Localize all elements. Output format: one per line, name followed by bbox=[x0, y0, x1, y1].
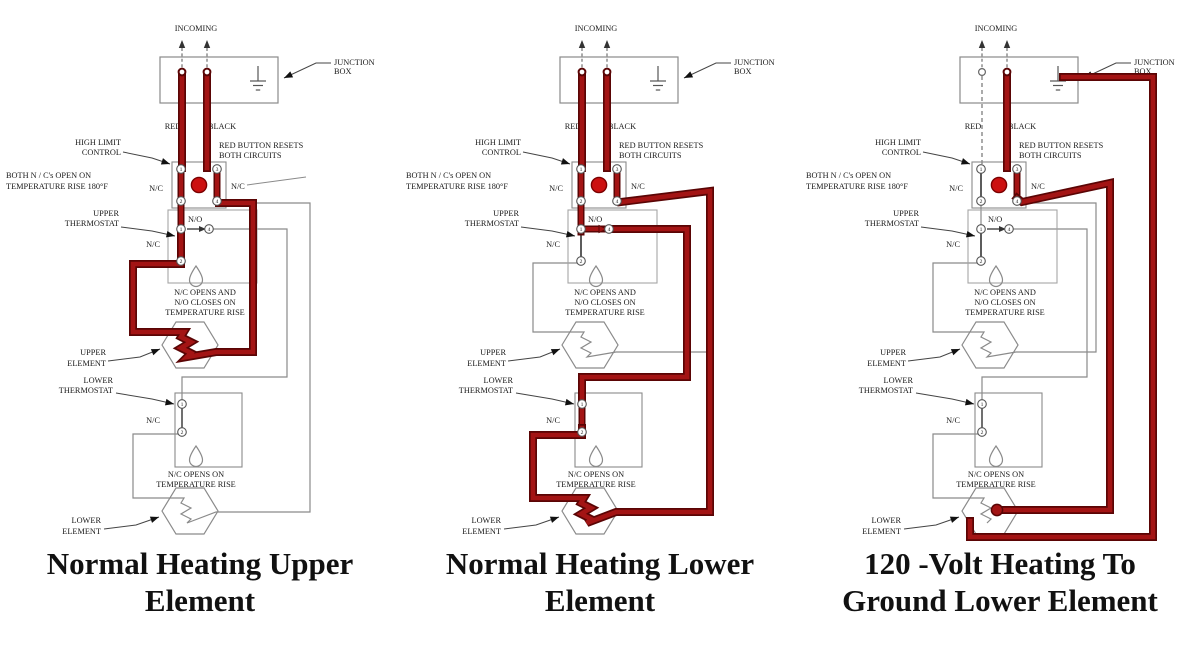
upper-thermostat-note: N/O CLOSES ON bbox=[574, 298, 635, 307]
upper-thermostat-note: N/C OPENS AND bbox=[574, 288, 636, 297]
lower-thermostat-note: N/C OPENS ON bbox=[968, 470, 1024, 479]
leader-arrowhead bbox=[151, 349, 160, 355]
upper-element-circuit bbox=[933, 203, 1096, 357]
incoming-arrow-icon bbox=[1004, 40, 1010, 48]
lower-thermostat-leader bbox=[916, 393, 974, 404]
incoming-arrow-icon bbox=[979, 40, 985, 48]
terminal-number: 1 bbox=[981, 402, 984, 408]
terminal-number: 2 bbox=[580, 259, 583, 265]
incoming-arrow-icon bbox=[604, 40, 610, 48]
junction-box bbox=[560, 57, 678, 103]
no-label: N/O bbox=[988, 215, 1002, 224]
black-wire-label: BLACK bbox=[1008, 122, 1036, 131]
lower-thermostat-leader bbox=[116, 393, 174, 404]
terminal-number: 1 bbox=[180, 227, 183, 233]
lower-bulb-icon bbox=[190, 446, 203, 467]
terminal-number: 1 bbox=[181, 402, 184, 408]
both-nc-label: TEMPERATURE RISE 180°F bbox=[806, 182, 908, 191]
red-wire-loop bbox=[979, 69, 986, 76]
nc-label-upper: N/C bbox=[946, 240, 960, 249]
leader-arrowhead bbox=[950, 517, 959, 523]
leader-arrowhead bbox=[566, 231, 575, 237]
incoming-arrow-icon bbox=[579, 40, 585, 48]
diagram-120v-ground: JUNCTIONBOXINCOMINGREDBLACK132414212HIGH… bbox=[800, 0, 1200, 654]
upper-thermostat-note: TEMPERATURE RISE bbox=[165, 308, 245, 317]
leader-arrowhead bbox=[966, 231, 975, 237]
nc-label-hlc-right: N/C bbox=[1031, 182, 1045, 191]
leader-arrowhead bbox=[684, 71, 693, 78]
lower-element-label: ELEMENT bbox=[862, 527, 901, 536]
terminal-number: 2 bbox=[181, 430, 184, 436]
terminal-number: 1 bbox=[180, 167, 183, 173]
caption-line: Element bbox=[400, 583, 800, 620]
terminal-number: 2 bbox=[180, 199, 183, 205]
nc-right-leader bbox=[247, 177, 306, 185]
lower-thermostat-label: THERMOSTAT bbox=[859, 386, 913, 395]
leader-arrowhead bbox=[165, 399, 174, 405]
both-nc-label: BOTH N / C's OPEN ON bbox=[6, 171, 91, 180]
upper-element bbox=[562, 322, 618, 368]
terminal-number: 2 bbox=[980, 199, 983, 205]
caption-line: Ground Lower Element bbox=[800, 583, 1200, 620]
terminal-number: 1 bbox=[581, 402, 584, 408]
upper-thermostat-label: THERMOSTAT bbox=[865, 219, 919, 228]
red-reset-button bbox=[591, 177, 606, 192]
red-reset-button bbox=[991, 177, 1006, 192]
red-button-label: RED BUTTON RESETS bbox=[219, 141, 304, 150]
red-button-label: BOTH CIRCUITS bbox=[619, 151, 682, 160]
terminal-number: 1 bbox=[580, 227, 583, 233]
both-nc-label: TEMPERATURE RISE 180°F bbox=[6, 182, 108, 191]
leader-arrowhead bbox=[961, 158, 970, 164]
terminal-number: 4 bbox=[1008, 227, 1011, 233]
lower-bulb-icon bbox=[590, 446, 603, 467]
junction-box-label: BOX bbox=[734, 67, 752, 76]
upper-thermostat-note: N/C OPENS AND bbox=[174, 288, 236, 297]
lower-thermostat-label: THERMOSTAT bbox=[59, 386, 113, 395]
leader-arrowhead bbox=[161, 158, 170, 164]
leader-arrowhead bbox=[951, 349, 960, 355]
upper-thermostat-note: N/O CLOSES ON bbox=[174, 298, 235, 307]
nc-label-hlc-left: N/C bbox=[149, 184, 163, 193]
terminal-number: 4 bbox=[1016, 199, 1019, 205]
lower-element-label: ELEMENT bbox=[62, 527, 101, 536]
nc-label-lower: N/C bbox=[546, 416, 560, 425]
upper-element-label: UPPER bbox=[880, 348, 906, 357]
terminal-number: 3 bbox=[1016, 167, 1019, 173]
lower-element bbox=[162, 488, 218, 534]
upper-element-label: ELEMENT bbox=[467, 359, 506, 368]
terminal-number: 2 bbox=[980, 259, 983, 265]
red-button-label: BOTH CIRCUITS bbox=[219, 151, 282, 160]
lower-thermostat-label: LOWER bbox=[84, 376, 114, 385]
terminal-number: 2 bbox=[981, 430, 984, 436]
terminal-number: 4 bbox=[216, 199, 219, 205]
upper-element-label: ELEMENT bbox=[867, 359, 906, 368]
lower-thermostat-note: TEMPERATURE RISE bbox=[956, 480, 1036, 489]
lower-thermostat-label: LOWER bbox=[884, 376, 914, 385]
nc-label-hlc-left: N/C bbox=[949, 184, 963, 193]
upper-thermostat-note: N/O CLOSES ON bbox=[974, 298, 1035, 307]
black-wire-loop bbox=[1004, 69, 1011, 76]
nc-label-hlc-right: N/C bbox=[231, 182, 245, 191]
nc-label-lower: N/C bbox=[946, 416, 960, 425]
caption-line: Element bbox=[0, 583, 400, 620]
high-limit-label: CONTROL bbox=[882, 148, 921, 157]
incoming-arrow-icon bbox=[179, 40, 185, 48]
red-wire-loop bbox=[179, 69, 186, 76]
upper-thermostat-note: TEMPERATURE RISE bbox=[565, 308, 645, 317]
terminal-number: 2 bbox=[580, 199, 583, 205]
upper-thermostat-label: THERMOSTAT bbox=[65, 219, 119, 228]
leader-arrowhead bbox=[284, 71, 293, 78]
upper-thermostat-label: THERMOSTAT bbox=[465, 219, 519, 228]
lower-element-label: LOWER bbox=[872, 516, 902, 525]
both-nc-label: BOTH N / C's OPEN ON bbox=[806, 171, 891, 180]
terminal-number: 2 bbox=[581, 430, 584, 436]
terminal-number: 4 bbox=[608, 227, 611, 233]
leader-arrowhead bbox=[965, 399, 974, 405]
terminal-number: 4 bbox=[616, 199, 619, 205]
high-limit-label: HIGH LIMIT bbox=[475, 138, 521, 147]
upper-thermostat-note: TEMPERATURE RISE bbox=[965, 308, 1045, 317]
junction-box bbox=[160, 57, 278, 103]
red-reset-button bbox=[191, 177, 206, 192]
terminal-number: 1 bbox=[980, 227, 983, 233]
high-limit-label: CONTROL bbox=[82, 148, 121, 157]
red-button-label: RED BUTTON RESETS bbox=[1019, 141, 1104, 150]
upper-thermostat-label: UPPER bbox=[93, 209, 119, 218]
black-wire-label: BLACK bbox=[208, 122, 236, 131]
upper-thermostat-label: UPPER bbox=[893, 209, 919, 218]
red-button-label: BOTH CIRCUITS bbox=[1019, 151, 1082, 160]
nc-label-hlc-right: N/C bbox=[631, 182, 645, 191]
junction-box-label: JUNCTION bbox=[334, 58, 375, 67]
diagram-normal-upper: JUNCTIONBOXINCOMINGREDBLACK132414212HIGH… bbox=[0, 0, 400, 654]
high-limit-label: HIGH LIMIT bbox=[875, 138, 921, 147]
lower-element-label: LOWER bbox=[72, 516, 102, 525]
no-label: N/O bbox=[588, 215, 602, 224]
nc-label-hlc-left: N/C bbox=[549, 184, 563, 193]
caption-line: Normal Heating Upper bbox=[0, 546, 400, 583]
upper-element-energized-path bbox=[133, 203, 253, 357]
lower-bulb-icon bbox=[990, 446, 1003, 467]
leader-arrowhead bbox=[166, 231, 175, 237]
caption-line: 120 -Volt Heating To bbox=[800, 546, 1200, 583]
leader-arrowhead bbox=[550, 517, 559, 523]
terminal-number: 1 bbox=[980, 167, 983, 173]
high-limit-label: CONTROL bbox=[482, 148, 521, 157]
nc-label-upper: N/C bbox=[546, 240, 560, 249]
black-wire-loop bbox=[604, 69, 611, 76]
circuit-svg-normal-upper: JUNCTIONBOXINCOMINGREDBLACK132414212HIGH… bbox=[0, 0, 400, 552]
no-label: N/O bbox=[188, 215, 202, 224]
lower-thermostat-note: N/C OPENS ON bbox=[168, 470, 224, 479]
red-wire-loop bbox=[579, 69, 586, 76]
upper-thermostat-note: N/C OPENS AND bbox=[974, 288, 1036, 297]
lower-element-label: LOWER bbox=[472, 516, 502, 525]
high-limit-label: HIGH LIMIT bbox=[75, 138, 121, 147]
lower-thermostat-note: TEMPERATURE RISE bbox=[156, 480, 236, 489]
incoming-arrow-icon bbox=[204, 40, 210, 48]
caption-line: Normal Heating Lower bbox=[400, 546, 800, 583]
black-wire-loop bbox=[204, 69, 211, 76]
caption-normal-lower: Normal Heating Lower Element bbox=[400, 546, 800, 619]
junction-box-label: JUNCTION bbox=[1134, 58, 1175, 67]
both-nc-label: TEMPERATURE RISE 180°F bbox=[406, 182, 508, 191]
upper-element bbox=[962, 322, 1018, 368]
junction-box-label: BOX bbox=[334, 67, 352, 76]
terminal-number: 3 bbox=[616, 167, 619, 173]
lower-thermostat-note: N/C OPENS ON bbox=[568, 470, 624, 479]
diagram-normal-lower: JUNCTIONBOXINCOMINGREDBLACK132414212HIGH… bbox=[400, 0, 800, 654]
lower-element-label: ELEMENT bbox=[462, 527, 501, 536]
upper-element-label: UPPER bbox=[480, 348, 506, 357]
both-nc-label: BOTH N / C's OPEN ON bbox=[406, 171, 491, 180]
lower-thermostat-leader bbox=[516, 393, 574, 404]
incoming-label: INCOMING bbox=[175, 24, 217, 33]
terminal-number: 3 bbox=[216, 167, 219, 173]
red-wire-label: RED bbox=[965, 122, 982, 131]
circuit-svg-normal-lower: JUNCTIONBOXINCOMINGREDBLACK132414212HIGH… bbox=[400, 0, 800, 552]
caption-normal-upper: Normal Heating Upper Element bbox=[0, 546, 400, 619]
leader-arrowhead bbox=[565, 399, 574, 405]
lower-thermostat-label: THERMOSTAT bbox=[459, 386, 513, 395]
nc-label-lower: N/C bbox=[146, 416, 160, 425]
incoming-label: INCOMING bbox=[575, 24, 617, 33]
lower-thermostat-note: TEMPERATURE RISE bbox=[556, 480, 636, 489]
lower-thermostat-label: LOWER bbox=[484, 376, 514, 385]
red-button-label: RED BUTTON RESETS bbox=[619, 141, 704, 150]
black-wire-label: BLACK bbox=[608, 122, 636, 131]
short-point-blob bbox=[991, 504, 1002, 515]
terminal-number: 1 bbox=[580, 167, 583, 173]
upper-thermostat-label: UPPER bbox=[493, 209, 519, 218]
leader-arrowhead bbox=[551, 349, 560, 355]
water-heater-wiring-diagrams: JUNCTIONBOXINCOMINGREDBLACK132414212HIGH… bbox=[0, 0, 1200, 654]
circuit-svg-120v-ground: JUNCTIONBOXINCOMINGREDBLACK132414212HIGH… bbox=[800, 0, 1200, 552]
incoming-label: INCOMING bbox=[975, 24, 1017, 33]
upper-element-label: ELEMENT bbox=[67, 359, 106, 368]
caption-120v-ground: 120 -Volt Heating To Ground Lower Elemen… bbox=[800, 546, 1200, 619]
leader-arrowhead bbox=[561, 158, 570, 164]
nc-label-upper: N/C bbox=[146, 240, 160, 249]
terminal-number: 2 bbox=[180, 259, 183, 265]
upper-element-label: UPPER bbox=[80, 348, 106, 357]
terminal-number: 4 bbox=[208, 227, 211, 233]
leader-arrowhead bbox=[150, 517, 159, 523]
junction-box-label: JUNCTION bbox=[734, 58, 775, 67]
